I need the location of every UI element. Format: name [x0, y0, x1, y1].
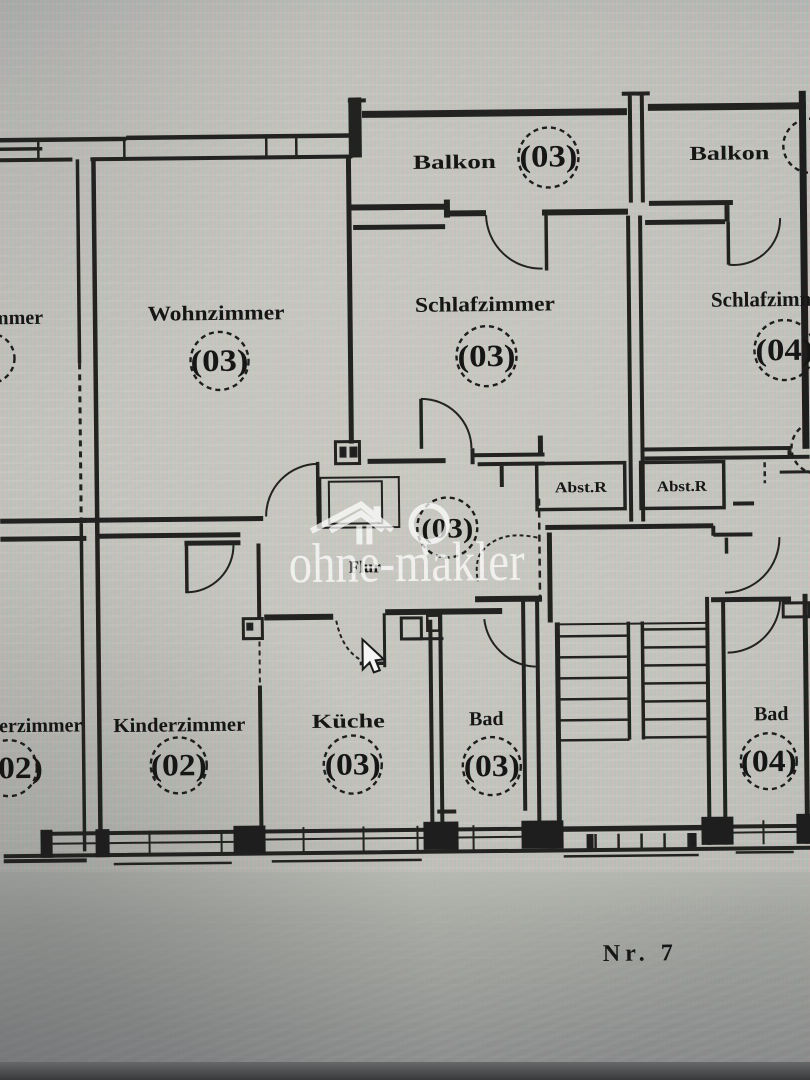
svg-text:Kinderzimmer: Kinderzimmer — [113, 714, 245, 737]
svg-text:ohne-makler: ohne-makler — [288, 531, 525, 595]
svg-text:Bad: Bad — [469, 708, 504, 730]
svg-text:Schlafzimmer: Schlafzimmer — [415, 291, 555, 316]
svg-text:Balkon: Balkon — [689, 142, 769, 165]
svg-text:Balkon: Balkon — [413, 151, 496, 174]
svg-text:Schlafzimm: Schlafzimm — [711, 287, 810, 312]
svg-text:Wohnzimmer: Wohnzimmer — [147, 300, 284, 325]
svg-text:(03): (03) — [325, 746, 381, 782]
svg-text:(02): (02) — [151, 747, 207, 783]
svg-text:Bad: Bad — [754, 703, 789, 725]
svg-text:(03): (03) — [464, 748, 520, 784]
svg-text:(02): (02) — [0, 750, 43, 786]
svg-text:Küche: Küche — [312, 710, 385, 733]
svg-text:Abst.R: Abst.R — [657, 479, 707, 496]
svg-text:(04): (04) — [741, 743, 797, 779]
svg-text:(03): (03) — [457, 338, 515, 374]
svg-text:(03): (03) — [519, 138, 577, 174]
svg-text:mmer: mmer — [0, 307, 43, 330]
svg-text:erzimmer: erzimmer — [0, 714, 83, 737]
svg-text:(03): (03) — [190, 343, 248, 379]
svg-text:(04): (04) — [755, 332, 810, 368]
svg-text:Abst.R: Abst.R — [555, 480, 607, 497]
